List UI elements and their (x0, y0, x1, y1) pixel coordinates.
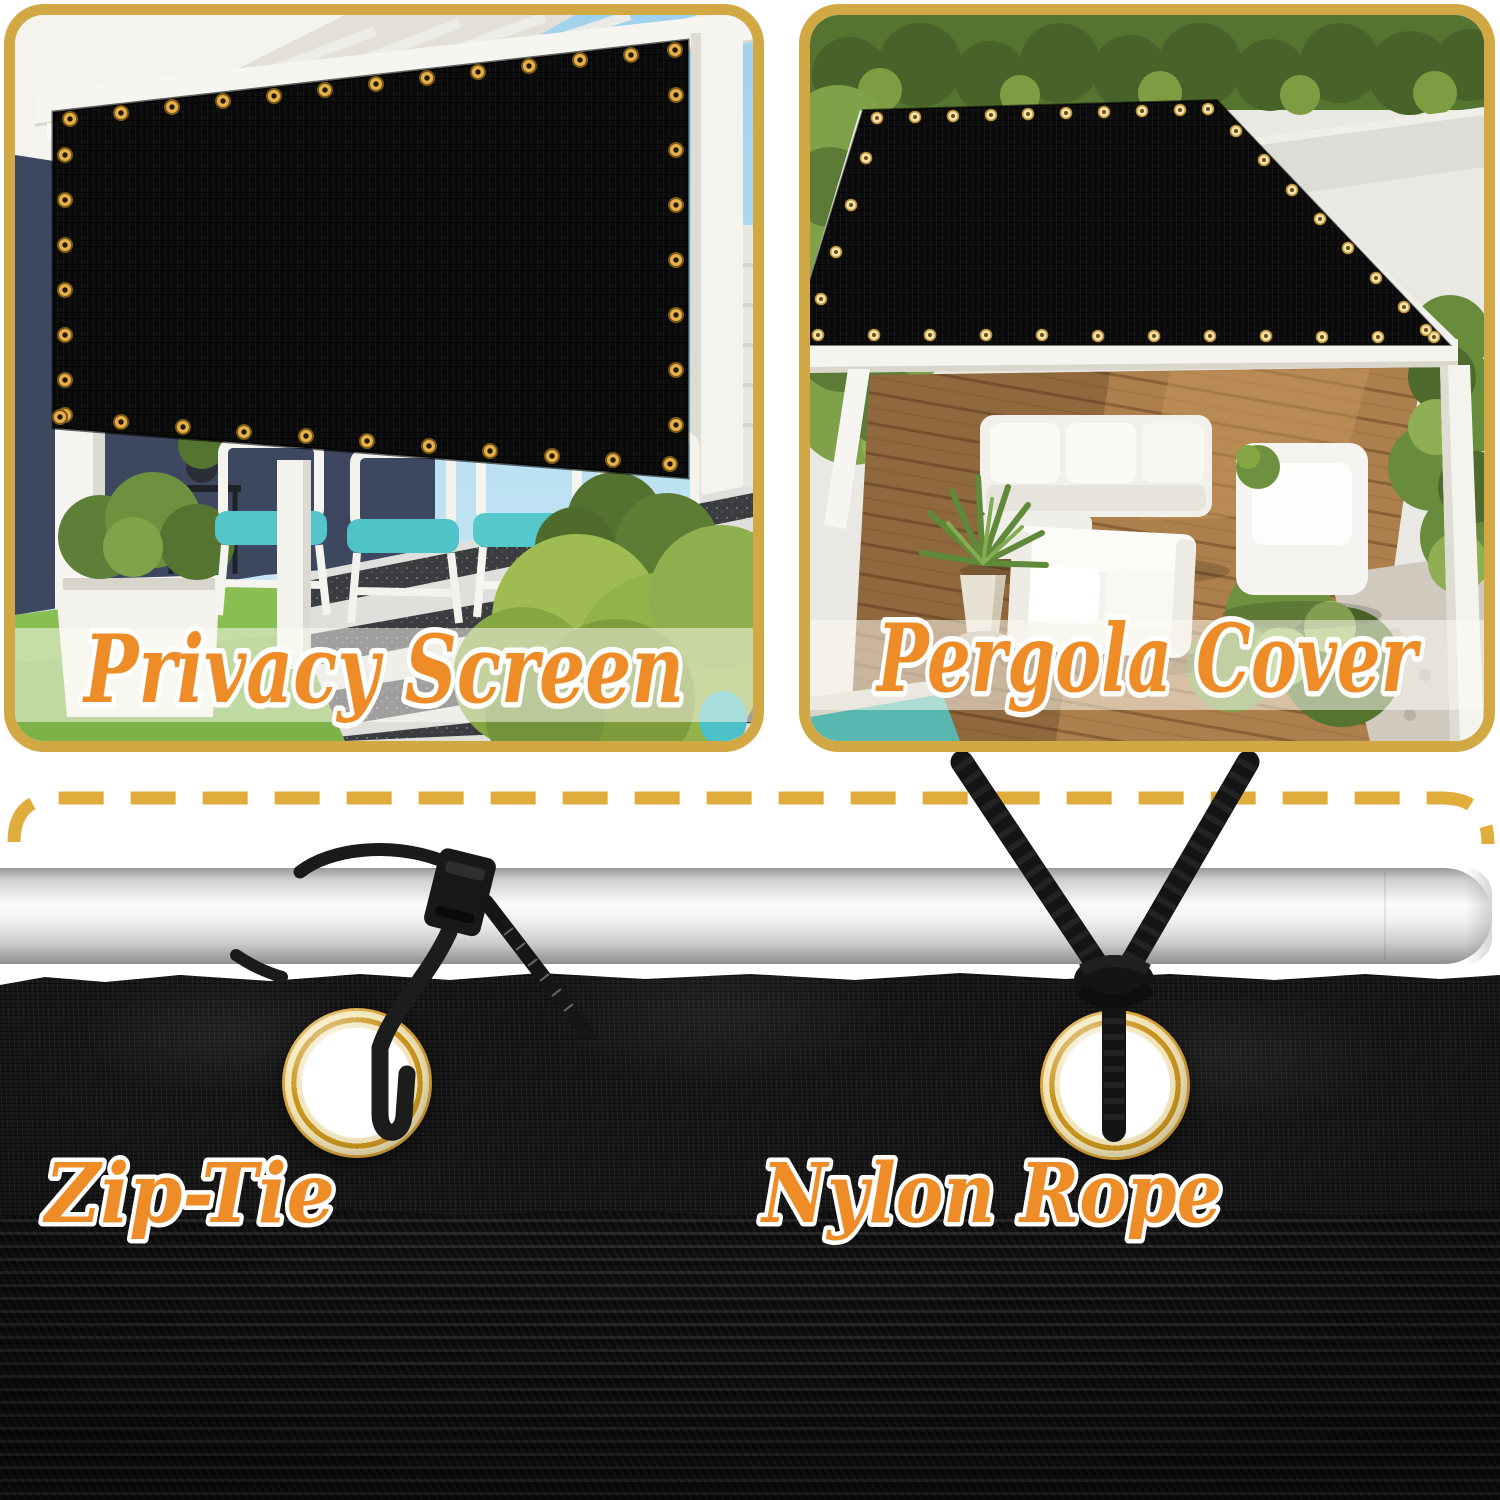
privacy-screen-label-band: Privacy Screen (15, 628, 753, 722)
privacy-screen-label: Privacy Screen (82, 615, 684, 725)
privacy-screen-photo-card: Privacy Screen (4, 4, 764, 752)
gold-dashed-border (14, 798, 1488, 844)
pergola-cover-photo-card: Pergola Cover (799, 4, 1495, 752)
grommet-ring-right (1040, 1010, 1190, 1160)
shade-fabric-knit-texture (0, 1207, 1500, 1500)
metal-mounting-pole (0, 868, 1492, 964)
grommet-ring-left (282, 1008, 432, 1158)
privacy-screen-mesh (53, 40, 688, 478)
shade-fabric (0, 971, 1500, 1500)
pergola-cover-label-band: Pergola Cover (810, 620, 1484, 710)
product-feature-collage: Privacy Screen (0, 0, 1500, 1500)
pergola-cover-label: Pergola Cover (875, 604, 1422, 714)
mounting-demo-section: Zip-Tie Nylon Rope (0, 752, 1500, 1500)
